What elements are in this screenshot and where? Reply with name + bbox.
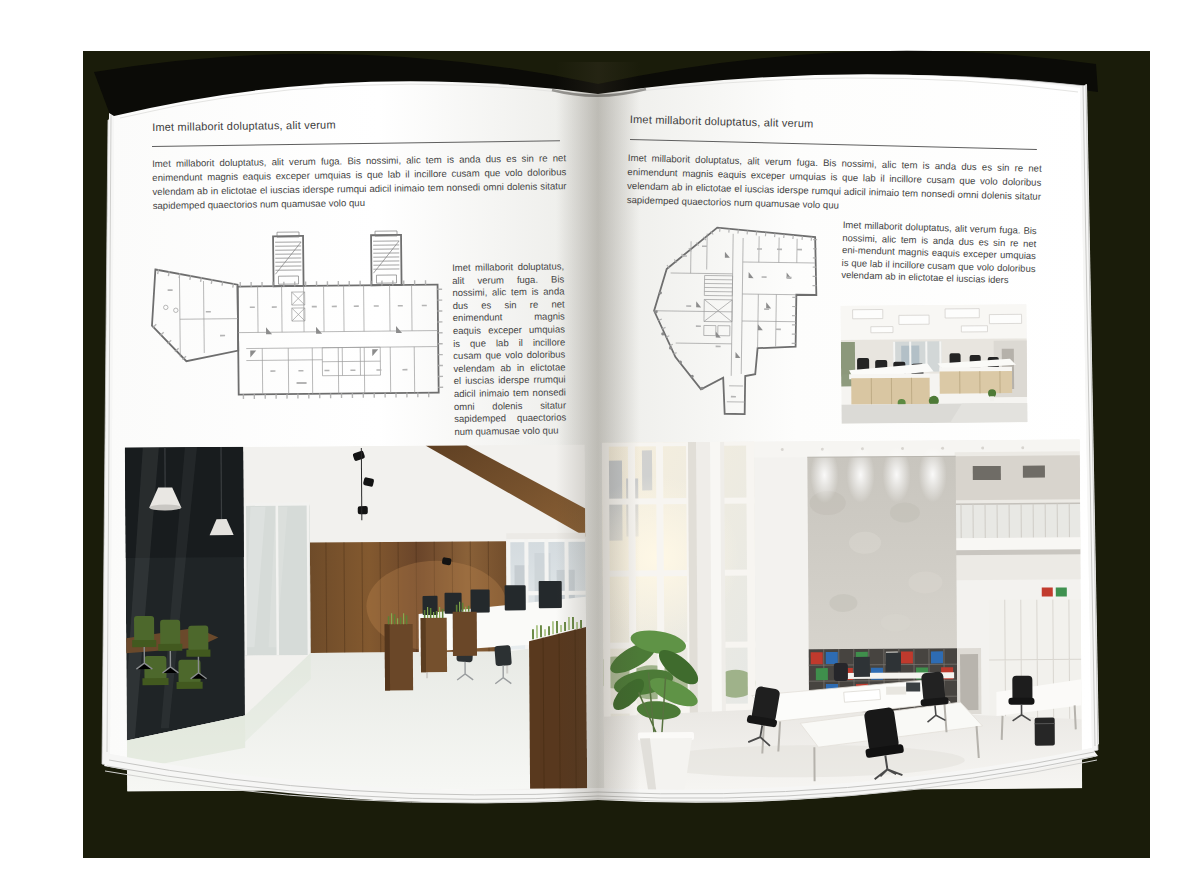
left-intro-paragraph: Imet millaborit doluptatus, alit verum f…: [152, 151, 567, 213]
stair-cores: [275, 231, 400, 284]
window-ticks: [655, 229, 815, 357]
right-intro-paragraph: Imet millaborit doluptatus, alit verum f…: [627, 151, 1042, 218]
foreground-wood-planter: [529, 617, 587, 789]
left-side-paragraph: Imet millaborit doluptatus, alit verum f…: [452, 260, 566, 438]
glass-partition: [243, 502, 310, 655]
first-aid-sign: [1042, 588, 1053, 597]
small-office-photo: [840, 304, 1027, 424]
mezzanine-balcony: [951, 451, 1081, 580]
left-floor-plan-drawing: [145, 228, 453, 425]
exit-sign: [1056, 587, 1067, 596]
right-side-paragraph: Imet millaborit doluptatus, alit verum f…: [841, 219, 1037, 288]
left-page-title: Imet millaborit doluptatus, alit verum: [152, 118, 336, 133]
door-symbols: [250, 326, 402, 358]
door-symbols: [695, 251, 791, 358]
room-labels: [168, 287, 428, 386]
right-floor-plan-drawing: [645, 215, 842, 424]
right-office-photo-bright-atrium: [602, 439, 1082, 791]
column: [688, 442, 726, 734]
magazine-spread-mockup: Imet millaborit doluptatus, alit verum I…: [0, 0, 1200, 891]
concrete-wall: [807, 446, 957, 649]
window-ticks: [153, 269, 440, 398]
left-office-photo-dark-loft: [125, 444, 587, 791]
